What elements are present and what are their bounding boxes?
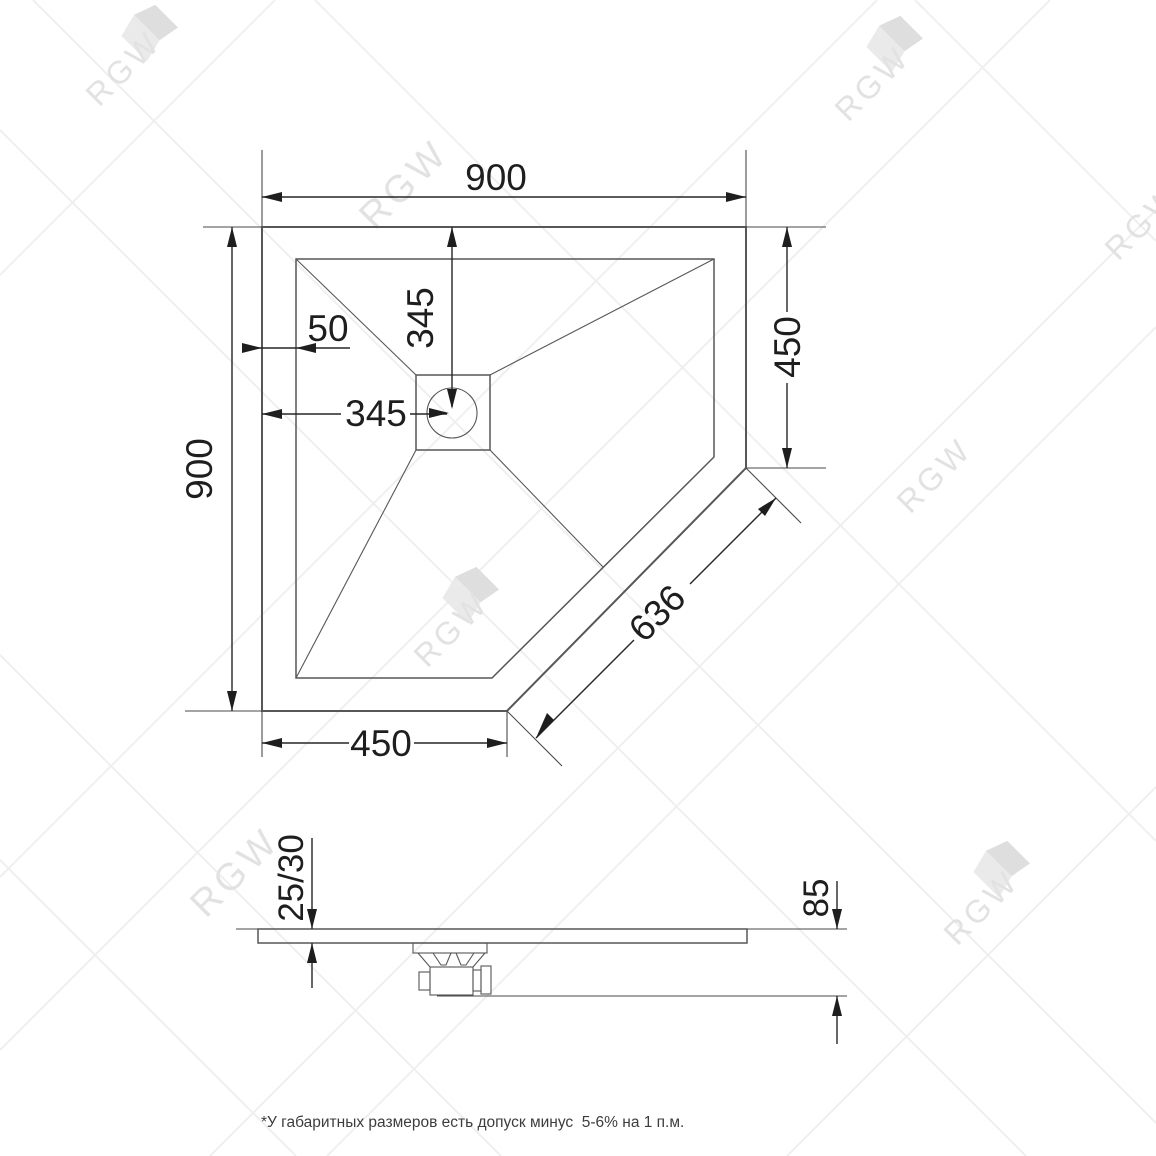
watermark-brand-text: RGW: [890, 431, 979, 520]
arrowhead-icon: [536, 713, 554, 738]
arrowhead-icon: [726, 192, 746, 202]
watermark-layer: RGW RGW RGW RGW RGW RGW RGW RGW: [0, 0, 1156, 1156]
dim-total-height: 85: [437, 879, 847, 1044]
slope-crease: [490, 450, 603, 567]
tray-profile: [258, 929, 747, 943]
tray-outer-outline: [262, 227, 746, 711]
arrowhead-icon: [429, 408, 449, 418]
watermark-line: [315, 0, 1156, 841]
arrowhead-icon: [782, 227, 792, 247]
extension-line: [507, 711, 562, 766]
drain-funnel-rib: [456, 953, 474, 965]
dim-bottom-side: 450: [262, 711, 507, 764]
watermark-brand-text: RGW: [352, 132, 458, 238]
watermark-line: [0, 130, 1026, 1156]
drain-funnel: [418, 953, 485, 967]
drain-outlet-plate: [481, 966, 491, 994]
arrowhead-icon: [832, 996, 842, 1016]
dim-overall-width: 900: [262, 150, 746, 227]
top-view: [262, 227, 746, 711]
dim-label-total-height: 85: [797, 879, 836, 918]
arrowhead-icon: [242, 343, 262, 353]
arrowhead-icon: [782, 448, 792, 468]
drain-funnel-rib: [433, 953, 451, 965]
watermark-line: [0, 860, 296, 1156]
dim-label-drain-from-top: 345: [400, 287, 441, 349]
drain-flange: [413, 943, 487, 953]
arrowhead-icon: [447, 227, 457, 247]
dim-drain-from-left: 345: [262, 393, 449, 434]
arrowhead-icon: [447, 389, 457, 409]
dim-label-rim-offset: 50: [307, 308, 348, 349]
extension-line: [746, 468, 801, 523]
watermark-line: [210, 210, 1156, 1156]
tolerance-note: *У габаритных размеров есть допуск минус…: [261, 1114, 684, 1131]
drawing-page: RGW RGW RGW RGW RGW RGW RGW RGW: [0, 0, 1156, 1156]
drain-trap-tab: [419, 972, 430, 990]
dim-drain-from-top: 345: [400, 227, 457, 409]
watermark-line: [0, 655, 501, 1156]
dim-label-chamfer: 636: [621, 577, 694, 650]
arrowhead-icon: [307, 943, 317, 963]
dim-label-overall-depth: 900: [179, 438, 220, 500]
dim-label-bottom-side: 450: [350, 723, 412, 764]
arrowhead-icon: [227, 227, 237, 247]
arrowhead-icon: [227, 691, 237, 711]
dim-label-tray-thickness: 25/30: [272, 834, 311, 922]
arrowhead-icon: [262, 738, 282, 748]
watermark-line: [915, 0, 1156, 241]
dim-overall-depth: 900: [179, 227, 262, 711]
dimensions-side-view: 25/30 85: [236, 834, 847, 1044]
watermark-line: [327, 327, 1156, 1156]
drain-trap-body: [430, 967, 473, 995]
arrowhead-icon: [262, 192, 282, 202]
arrowhead-icon: [262, 409, 282, 419]
dim-label-drain-from-left: 345: [345, 393, 407, 434]
drain-outlet-neck: [473, 970, 481, 991]
dim-label-right-side: 450: [767, 316, 808, 378]
dim-label-overall-width: 900: [465, 157, 527, 198]
arrowhead-icon: [487, 738, 507, 748]
technical-drawing-canvas: RGW RGW RGW RGW RGW RGW RGW RGW: [0, 0, 1156, 1156]
